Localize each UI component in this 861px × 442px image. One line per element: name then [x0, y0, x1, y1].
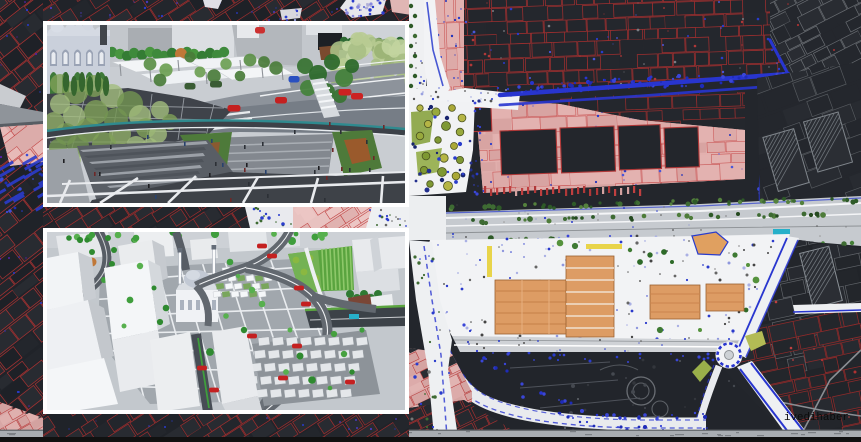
svg-text:ivedihaber: ivedihaber [784, 412, 849, 424]
